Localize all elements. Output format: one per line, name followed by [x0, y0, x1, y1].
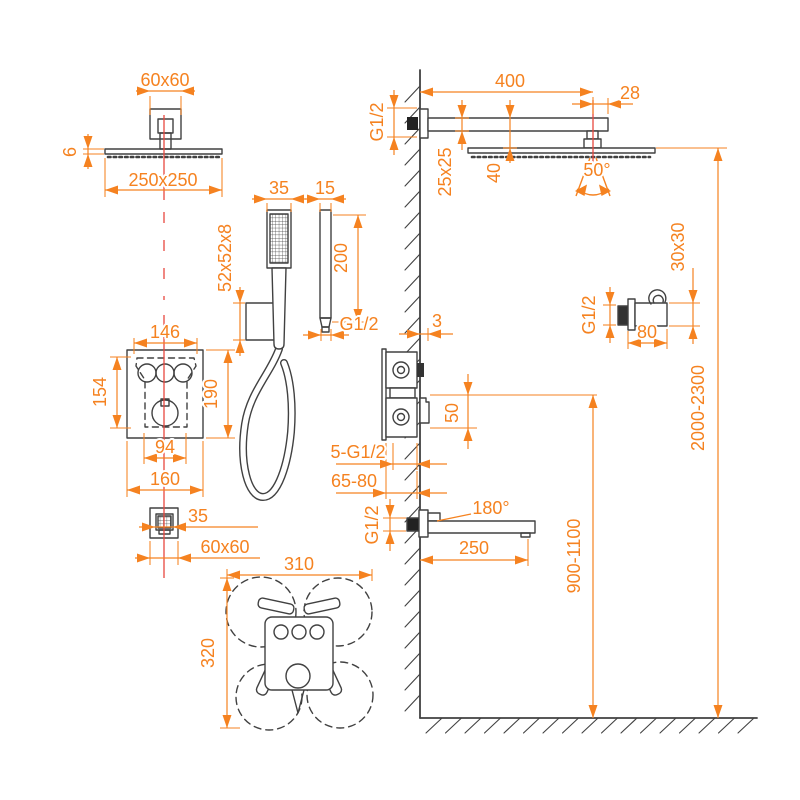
dim-valve-width-inner: 94	[155, 437, 175, 457]
dim-valve-height: 190	[201, 379, 221, 409]
dim-outlet-size: 60x60	[200, 537, 249, 557]
dim-head-drop: 40	[484, 163, 504, 183]
dim-spout-length: 250	[459, 538, 489, 558]
dim-ceil-head: 250x250	[128, 170, 197, 190]
dim-holder-size: 52x52x8	[215, 224, 235, 292]
dim-arm-length: 400	[495, 71, 525, 91]
dim-elbow-thread: G1/2	[339, 314, 378, 334]
dim-elbow-length: 200	[331, 243, 351, 273]
dim-handshower-width: 35	[269, 178, 289, 198]
dim-bracket-length: 80	[637, 322, 657, 342]
dim-outlet-inner: 35	[188, 506, 208, 526]
dim-arm-thread: G1/2	[367, 102, 387, 141]
dim-valve-height-inner: 154	[90, 377, 110, 407]
dim-arm-section: 25x25	[435, 147, 455, 196]
dim-trim-gap: 3	[432, 311, 442, 331]
dim-spout-height: 900-1100	[564, 519, 584, 594]
dim-head-height: 2000-2300	[688, 365, 708, 451]
dim-ceil-flange: 60x60	[140, 70, 189, 90]
dim-spray-height: 320	[198, 638, 218, 668]
dim-spout-thread: G1/2	[362, 505, 382, 544]
dim-elbow-width: 15	[315, 178, 335, 198]
dim-valve-width: 160	[150, 469, 180, 489]
dim-valve-ports: 5-G1/2	[330, 442, 385, 462]
dim-valve-width-top: 146	[150, 322, 180, 342]
dim-bracket-size: 30x30	[668, 222, 688, 271]
technical-drawing-sheet: 60x60 6 250x250 35 15 52x52x8 200 G1/2 1…	[0, 0, 800, 800]
dim-spray-width: 310	[284, 554, 314, 574]
dim-install-depth: 65-80	[331, 471, 377, 491]
dim-arm-offset: 28	[620, 83, 640, 103]
dim-spout-swivel: 180°	[472, 498, 509, 518]
dim-head-tilt: 50°	[583, 160, 610, 180]
dim-bracket-thread: G1/2	[579, 295, 599, 334]
dim-trim-height: 50	[442, 403, 462, 423]
dim-ceil-thickness: 6	[60, 147, 80, 157]
